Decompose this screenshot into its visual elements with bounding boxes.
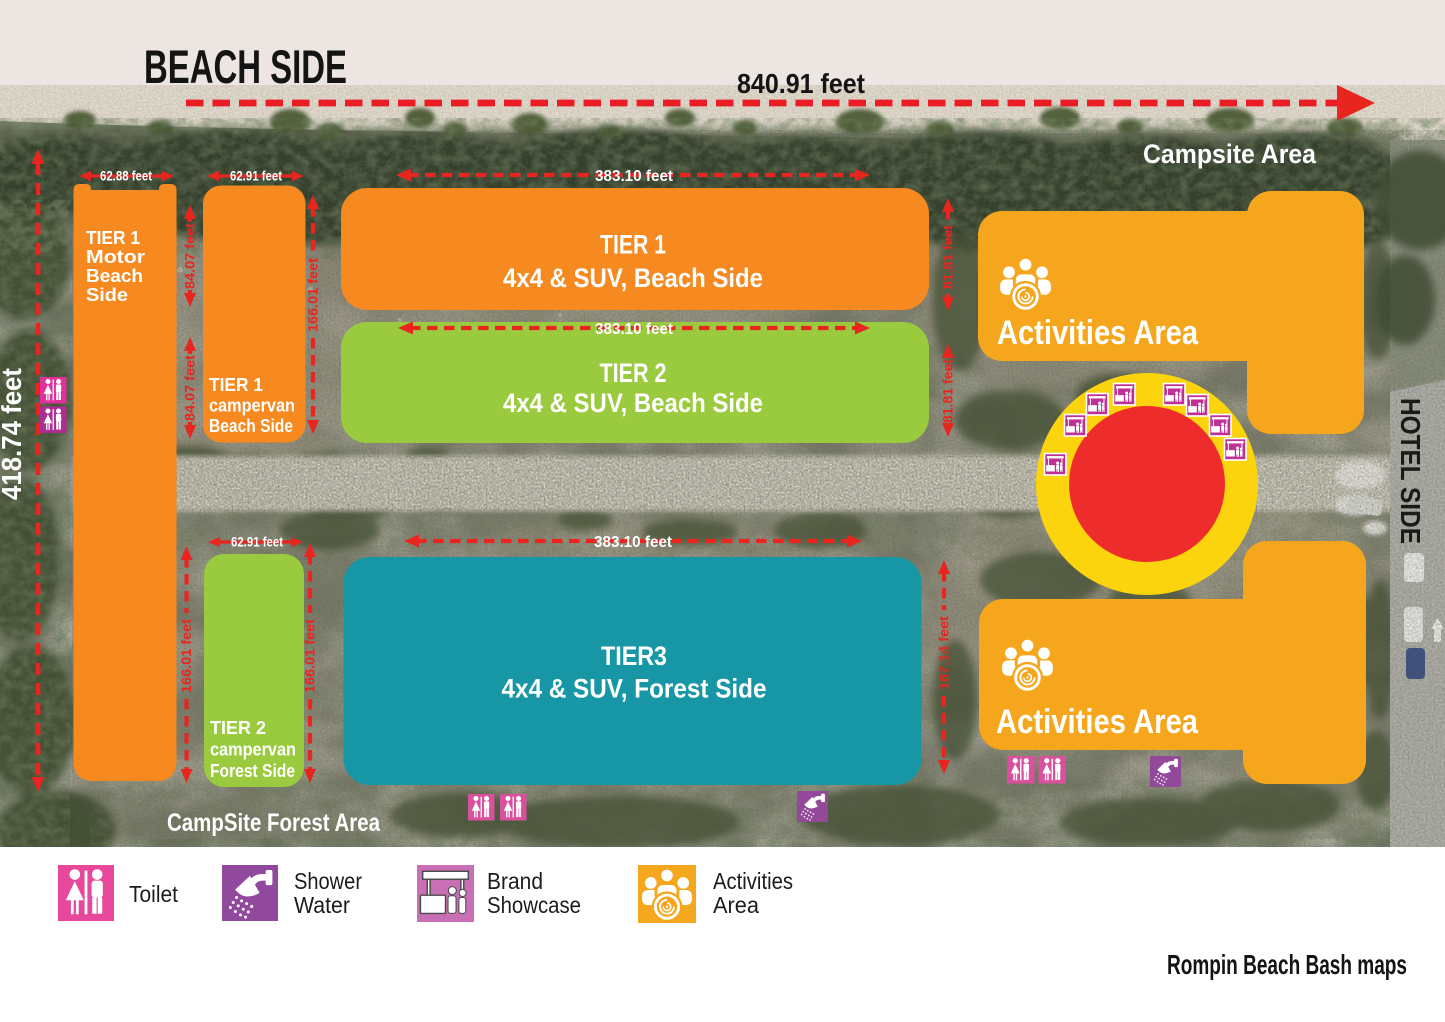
svg-text:Water: Water [294,892,350,918]
svg-text:CampSite Forest Area: CampSite Forest Area [167,809,381,837]
svg-text:Activities Area: Activities Area [996,703,1199,741]
svg-text:383.10 feet: 383.10 feet [595,168,673,185]
svg-text:Showcase: Showcase [487,892,581,918]
svg-text:Beach: Beach [86,266,143,286]
svg-text:HOTEL SIDE: HOTEL SIDE [1395,398,1426,544]
svg-text:167.14 feet: 167.14 feet [937,615,952,690]
svg-text:81.81 feet: 81.81 feet [941,224,956,289]
svg-text:4x4 & SUV, Forest Side: 4x4 & SUV, Forest Side [502,674,767,704]
svg-text:Campsite Area: Campsite Area [1143,139,1317,169]
svg-text:TIER 2: TIER 2 [210,718,266,738]
svg-text:campervan: campervan [210,740,296,760]
svg-text:81.81 feet: 81.81 feet [941,358,956,423]
svg-text:Brand: Brand [487,868,543,894]
svg-text:TIER 1: TIER 1 [209,375,263,395]
svg-text:Side: Side [86,285,128,305]
svg-text:383.10 feet: 383.10 feet [595,321,673,338]
svg-text:Activities Area: Activities Area [997,314,1199,352]
svg-text:Shower: Shower [294,868,362,894]
svg-text:418.74 feet: 418.74 feet [0,368,27,500]
svg-text:TIER3: TIER3 [601,641,667,671]
svg-text:166.01 feet: 166.01 feet [306,257,321,332]
svg-text:62.88 feet: 62.88 feet [100,169,152,184]
svg-text:4x4 & SUV, Beach Side: 4x4 & SUV, Beach Side [503,263,763,293]
svg-text:62.91 feet: 62.91 feet [230,169,282,184]
svg-text:Motor: Motor [86,247,145,267]
svg-text:84.07 feet: 84.07 feet [183,354,198,421]
svg-text:TIER 1: TIER 1 [600,230,666,260]
svg-text:84.07 feet: 84.07 feet [183,222,198,289]
svg-text:Toilet: Toilet [129,881,179,907]
svg-text:BEACH SIDE: BEACH SIDE [144,40,347,93]
svg-text:campervan: campervan [209,396,295,416]
svg-text:383.10 feet: 383.10 feet [594,534,672,551]
svg-text:4x4 & SUV, Beach Side: 4x4 & SUV, Beach Side [503,388,763,418]
svg-text:166.01 feet: 166.01 feet [179,618,194,693]
svg-text:Area: Area [713,892,759,918]
svg-text:62.91 feet: 62.91 feet [231,535,283,550]
svg-text:TIER 2: TIER 2 [600,358,667,388]
svg-text:Forest Side: Forest Side [210,761,295,781]
svg-text:Activities: Activities [713,868,793,894]
svg-text:TIER 1: TIER 1 [86,228,140,248]
svg-text:166.01 feet: 166.01 feet [303,618,318,693]
svg-text:840.91 feet: 840.91 feet [737,68,865,99]
svg-text:Beach Side: Beach Side [209,416,293,436]
svg-text:Rompin Beach Bash maps: Rompin Beach Bash maps [1167,949,1407,980]
